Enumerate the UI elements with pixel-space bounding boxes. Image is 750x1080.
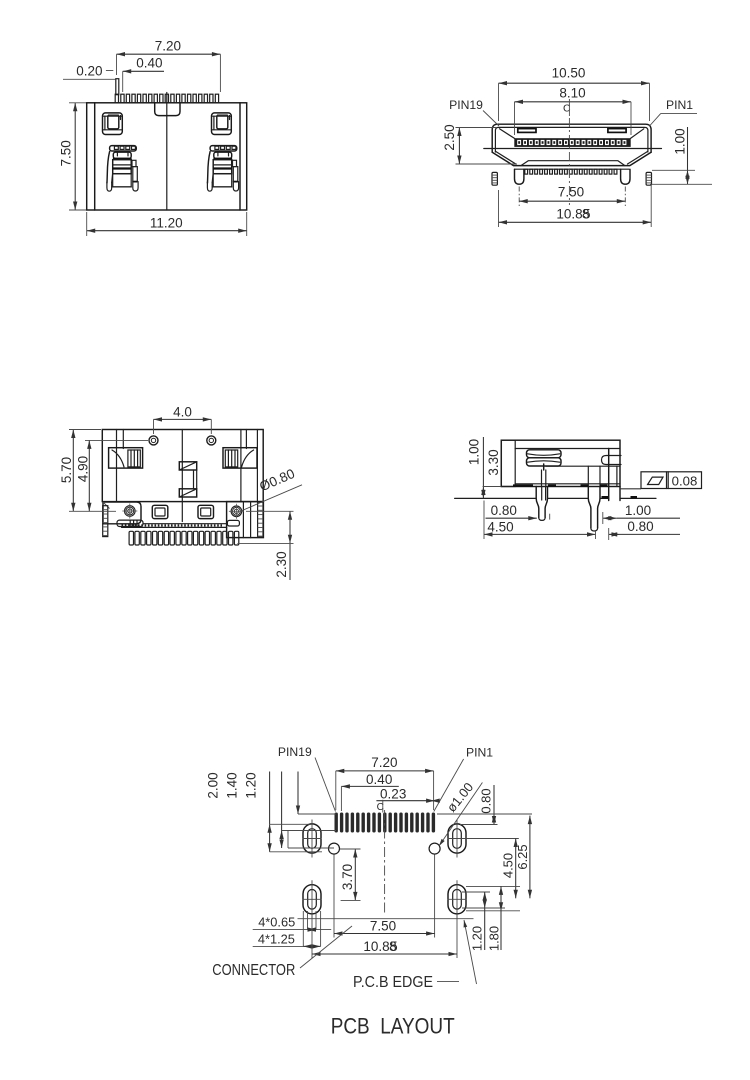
svg-text:1.40: 1.40	[225, 772, 240, 798]
svg-text:PIN19: PIN19	[278, 745, 312, 759]
svg-text:0.08: 0.08	[672, 473, 698, 488]
svg-text:5: 5	[390, 939, 398, 954]
svg-text:7.50: 7.50	[59, 140, 74, 166]
svg-text:1.20: 1.20	[470, 926, 485, 951]
svg-text:11.20: 11.20	[150, 216, 183, 231]
svg-text:0.80: 0.80	[478, 788, 493, 813]
svg-text:P.C.B EDGE: P.C.B EDGE	[353, 974, 433, 991]
svg-text:PIN19: PIN19	[449, 98, 483, 112]
svg-text:0.80: 0.80	[491, 503, 517, 518]
svg-text:4.0: 4.0	[173, 405, 192, 420]
svg-text:7.50: 7.50	[370, 919, 396, 934]
svg-text:7.20: 7.20	[371, 755, 397, 770]
svg-text:7.50: 7.50	[558, 185, 584, 200]
svg-text:10.50: 10.50	[552, 66, 586, 81]
svg-text:1.00: 1.00	[673, 128, 688, 154]
svg-text:0.40: 0.40	[136, 55, 162, 70]
svg-text:1.20: 1.20	[244, 772, 259, 798]
svg-text:PIN1: PIN1	[666, 98, 693, 112]
svg-text:3.70: 3.70	[340, 864, 355, 890]
svg-text:1.00: 1.00	[466, 439, 481, 465]
svg-text:2.30: 2.30	[274, 551, 289, 577]
svg-text:4.50: 4.50	[487, 520, 513, 535]
svg-text:1.80: 1.80	[487, 926, 502, 951]
svg-text:2.50: 2.50	[442, 124, 457, 150]
svg-text:PCB LAYOUT: PCB LAYOUT	[331, 1014, 455, 1039]
svg-text:4.90: 4.90	[76, 456, 91, 482]
svg-text:7.20: 7.20	[155, 39, 181, 54]
svg-text:5.70: 5.70	[59, 457, 74, 483]
svg-text:4*0.65: 4*0.65	[258, 914, 295, 929]
svg-text:PIN1: PIN1	[466, 745, 493, 759]
svg-text:4*1.25: 4*1.25	[258, 932, 295, 947]
svg-text:1.00: 1.00	[625, 503, 651, 518]
svg-text:8.10: 8.10	[559, 86, 585, 101]
svg-text:0.80: 0.80	[627, 519, 653, 534]
svg-text:0.40: 0.40	[366, 772, 392, 787]
svg-text:3.30: 3.30	[486, 449, 501, 475]
svg-text:2.00: 2.00	[206, 772, 221, 798]
svg-text:5: 5	[583, 207, 591, 222]
svg-text:10.8: 10.8	[556, 207, 582, 222]
svg-text:0.23: 0.23	[380, 786, 406, 801]
svg-text:CONNECTOR: CONNECTOR	[212, 962, 295, 979]
svg-text:6.25: 6.25	[515, 844, 530, 869]
svg-text:0.20: 0.20	[76, 63, 102, 78]
svg-text:10.8: 10.8	[363, 939, 389, 954]
svg-text:4.50: 4.50	[501, 853, 516, 878]
